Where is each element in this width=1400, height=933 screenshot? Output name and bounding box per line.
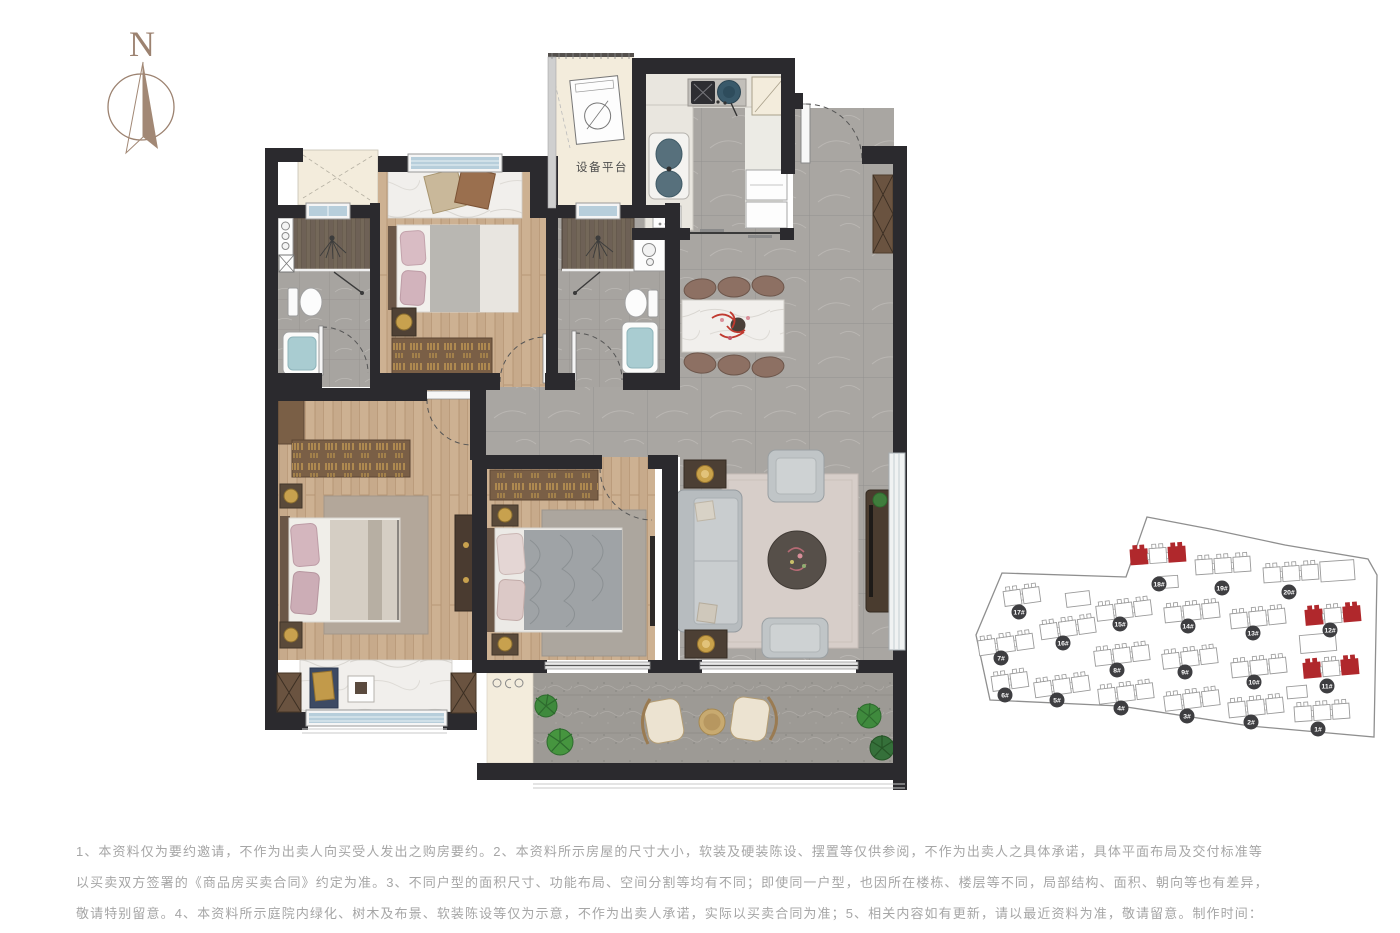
building-badge-label: 16# [1057, 640, 1069, 647]
tv-screen [869, 505, 873, 597]
tv-panel-second [650, 536, 655, 626]
bay-pillow-2 [455, 167, 496, 209]
building-badge-label: 15# [1114, 621, 1126, 628]
ac-platform [298, 150, 378, 205]
dining-area [682, 274, 785, 379]
balcony-chair [729, 696, 770, 743]
building-badge-label: 19# [1216, 585, 1228, 592]
building-badge-label: 10# [1248, 679, 1260, 686]
building-badge-label: 4# [1117, 705, 1125, 712]
building-badge-label: 5# [1053, 697, 1061, 704]
toilet-1 [288, 288, 298, 316]
disclaimer-line: 1、本资料仅为要约邀请，不作为出卖人向买受人发出之购房要约。2、本资料所示房屋的… [76, 836, 1332, 867]
building-badge-label: 17# [1013, 609, 1025, 616]
living-room-window [889, 453, 905, 650]
dining-chair [718, 277, 750, 297]
shoe-cabinet [873, 175, 893, 253]
building-badge-label: 18# [1153, 581, 1165, 588]
building-badge-label: 14# [1182, 623, 1194, 630]
balcony-chair [643, 697, 686, 745]
master-door-leaf [425, 391, 472, 399]
equipment-platform-label: 设备平台 [576, 160, 628, 174]
hallway-floor [485, 387, 681, 457]
compass-circle [108, 74, 174, 140]
building-badge-label: 6# [1001, 692, 1009, 699]
building-badge-label: 1# [1314, 726, 1322, 733]
compass: N [108, 24, 174, 153]
disclaimer-line: 以买卖双方签署的《商品房买卖合同》约定为准。3、不同户型的面积尺寸、功能布局、空… [76, 867, 1332, 898]
site-plan: 18#19#20#17#15#14#13#12#16#7#8#9#10#11#6… [976, 517, 1377, 737]
site-block [1287, 685, 1308, 699]
building-badge-label: 11# [1322, 683, 1333, 690]
plan-canvas: N [0, 0, 1400, 933]
disclaimer-line: 敬请特别留意。4、本资料所示庭院内绿化、树木及布景、软装陈设等仅为示意，不作为出… [76, 898, 1332, 929]
disclaimer: 1、本资料仅为要约邀请，不作为出卖人向买受人发出之购房要约。2、本资料所示房屋的… [76, 836, 1332, 933]
building-badge-label: 13# [1247, 630, 1259, 637]
compass-n-label: N [129, 24, 155, 64]
building-badge-label: 12# [1324, 627, 1336, 634]
toilet-2 [648, 290, 658, 317]
building-badge-label: 20# [1283, 589, 1295, 596]
laundry-nook-floor [487, 673, 533, 763]
entry-door-leaf [801, 104, 810, 163]
building-badge-label: 3# [1183, 713, 1191, 720]
building-badge-label: 2# [1247, 719, 1255, 726]
building-badge-label: 9# [1181, 669, 1189, 676]
floor-plan: 设备平台 [265, 53, 907, 790]
dining-chair [718, 355, 750, 375]
floor-plan-page: { "compass": { "label": "N" }, "floor_pl… [0, 0, 1400, 933]
coffee-table [768, 531, 826, 589]
balcony-sliding-doors [545, 662, 858, 669]
building-badge-label: 7# [997, 655, 1005, 662]
building-badge-label: 8# [1113, 667, 1121, 674]
disclaimer-line: 2021年3月，有效期1个月。 [76, 929, 1332, 933]
site-block [1065, 591, 1091, 608]
